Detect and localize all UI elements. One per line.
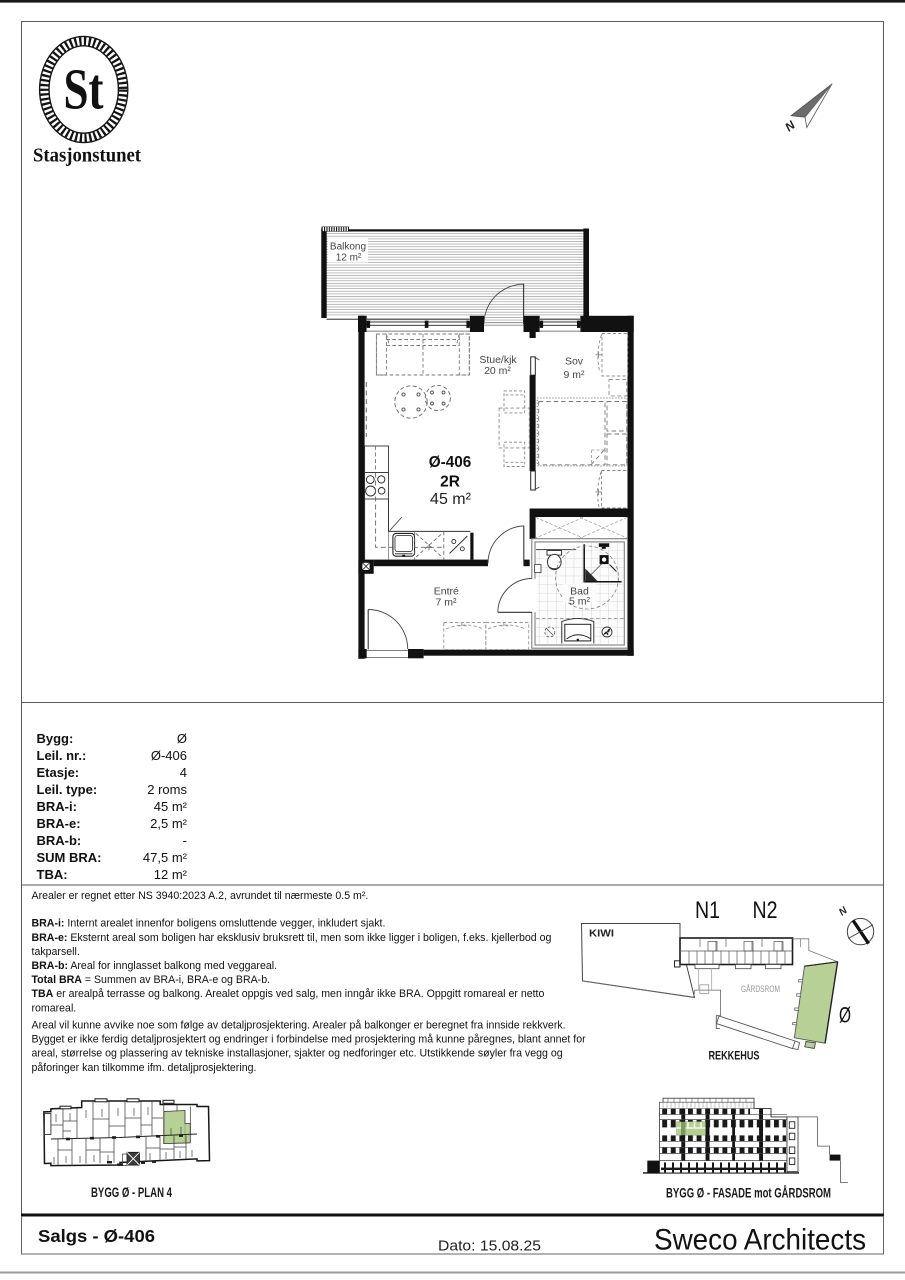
svg-text:romareal.: romareal. <box>32 1002 77 1014</box>
svg-text:2 roms: 2 roms <box>147 782 187 797</box>
svg-text:REKKEHUS: REKKEHUS <box>709 1051 760 1063</box>
svg-text:Ø-406: Ø-406 <box>151 748 187 763</box>
svg-text:12 m²: 12 m² <box>154 867 188 882</box>
svg-text:BRA-i:: BRA-i: <box>37 799 77 814</box>
svg-text:Areal vil kunne avvike noe som: Areal vil kunne avvike noe som følge av … <box>32 1020 566 1032</box>
svg-text:areal, størrelse og plassering: areal, størrelse og plassering av teknis… <box>32 1048 563 1060</box>
svg-text:Ø: Ø <box>177 731 187 746</box>
svg-text:Dato: 15.08.25: Dato: 15.08.25 <box>438 1239 541 1255</box>
svg-text:4: 4 <box>180 765 187 780</box>
svg-text:N: N <box>837 905 850 919</box>
svg-text:takparsell.: takparsell. <box>32 946 80 958</box>
svg-text:12 m²: 12 m² <box>336 253 362 264</box>
svg-text:2,5 m²: 2,5 m² <box>150 816 188 831</box>
svg-text:5 m²: 5 m² <box>569 596 591 608</box>
svg-text:Bygg:: Bygg: <box>37 731 74 746</box>
svg-text:9 m²: 9 m² <box>564 369 586 381</box>
svg-text:BRA-e:: BRA-e: <box>37 816 81 831</box>
svg-text:2R: 2R <box>440 474 460 491</box>
svg-text:BRA-e: Eksternt areal som boli: BRA-e: Eksternt areal som boligen har ek… <box>32 932 552 944</box>
svg-text:N2: N2 <box>753 897 778 924</box>
svg-text:BYGG Ø - PLAN 4: BYGG Ø - PLAN 4 <box>91 1185 172 1200</box>
svg-text:BRA-i: Internt arealet innenfo: BRA-i: Internt arealet innenfor boligens… <box>32 918 386 930</box>
svg-text:Arealer er regnet etter NS 394: Arealer er regnet etter NS 3940:2023 A.2… <box>32 890 369 902</box>
svg-text:TBA er arealpå terrasse og bal: TBA er arealpå terrasse og balkong. Area… <box>32 988 545 1000</box>
svg-text:45 m²: 45 m² <box>430 491 472 508</box>
svg-text:N: N <box>782 118 798 135</box>
svg-text:Ø-406: Ø-406 <box>429 454 472 471</box>
svg-text:GÅRDSROM: GÅRDSROM <box>741 984 780 994</box>
svg-text:Bygget er ikke ferdig detaljpr: Bygget er ikke ferdig detaljprosjektert … <box>32 1034 587 1046</box>
svg-text:Total BRA = Summen av BRA-i, B: Total BRA = Summen av BRA-i, BRA-e og BR… <box>32 974 271 986</box>
svg-text:SUM BRA:: SUM BRA: <box>37 850 102 865</box>
svg-text:KIWI: KIWI <box>589 929 614 940</box>
svg-text:Ø: Ø <box>839 1003 851 1028</box>
svg-text:BRA-b: Areal for innglasset ba: BRA-b: Areal for innglasset balkong med … <box>32 960 278 972</box>
svg-text:Etasje:: Etasje: <box>37 765 80 780</box>
svg-text:N1: N1 <box>695 897 720 924</box>
svg-text:-: - <box>183 833 187 848</box>
svg-text:Leil. type:: Leil. type: <box>37 782 98 797</box>
svg-text:Leil. nr.:: Leil. nr.: <box>37 748 87 763</box>
svg-text:20 m²: 20 m² <box>484 365 511 377</box>
svg-text:47,5 m²: 47,5 m² <box>143 850 188 865</box>
svg-text:7 m²: 7 m² <box>436 597 458 609</box>
svg-text:Balkong: Balkong <box>330 242 366 253</box>
svg-text:TBA:: TBA: <box>37 867 68 882</box>
svg-text:Stasjonstunet: Stasjonstunet <box>33 145 141 167</box>
svg-text:BYGG Ø - FASADE mot GÅRDSROM: BYGG Ø - FASADE mot GÅRDSROM <box>666 1186 831 1201</box>
svg-text:Sweco Architects: Sweco Architects <box>654 1224 866 1257</box>
svg-text:BRA-b:: BRA-b: <box>37 833 82 848</box>
svg-text:Salgs - Ø-406: Salgs - Ø-406 <box>38 1226 155 1246</box>
svg-text:påforinger kan tilkomme ifm. d: påforinger kan tilkomme ifm. detaljprosj… <box>32 1062 257 1074</box>
svg-text:Sov: Sov <box>565 356 584 368</box>
svg-text:45 m²: 45 m² <box>154 799 188 814</box>
svg-text:St: St <box>64 57 105 122</box>
